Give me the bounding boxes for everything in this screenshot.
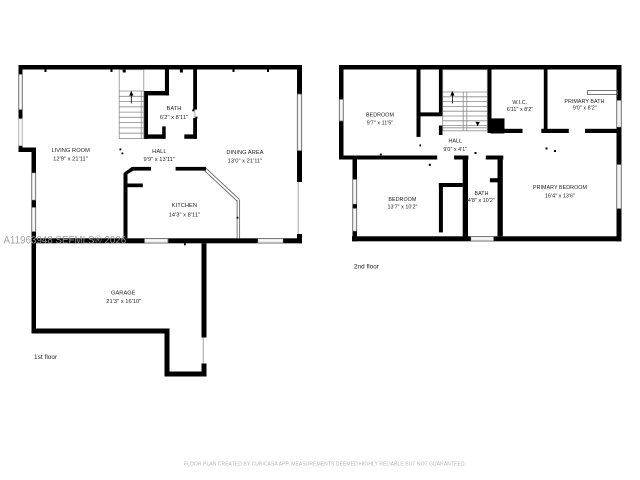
svg-text:21'3" x 16'10": 21'3" x 16'10"	[106, 299, 141, 305]
svg-text:4'8" x 10'2": 4'8" x 10'2"	[468, 198, 495, 204]
svg-text:PRIMARY BEDROOM: PRIMARY BEDROOM	[533, 185, 587, 191]
svg-text:1st floor: 1st floor	[34, 354, 58, 361]
svg-text:12'9" x 21'11": 12'9" x 21'11"	[53, 156, 88, 162]
svg-text:PRIMARY BATH: PRIMARY BATH	[564, 99, 604, 105]
svg-text:13'7" x 10'2": 13'7" x 10'2"	[388, 205, 418, 211]
svg-text:FLOOR PLAN CREATED BY CUBICASA: FLOOR PLAN CREATED BY CUBICASA APP. MEAS…	[184, 461, 466, 467]
svg-text:BATH: BATH	[474, 191, 488, 197]
svg-text:9'9" x 13'11": 9'9" x 13'11"	[143, 157, 174, 163]
svg-text:A11963948 SEFMLS® 2026: A11963948 SEFMLS® 2026	[3, 235, 126, 247]
svg-text:BATH: BATH	[167, 106, 182, 112]
svg-text:9'7" x 11'5": 9'7" x 11'5"	[367, 120, 394, 126]
svg-text:DINING AREA: DINING AREA	[226, 150, 263, 156]
svg-text:KITCHEN: KITCHEN	[172, 203, 197, 209]
svg-text:LIVING ROOM: LIVING ROOM	[51, 148, 90, 154]
svg-text:BEDROOM: BEDROOM	[388, 197, 416, 203]
svg-text:16'4" x 13'6": 16'4" x 13'6"	[545, 194, 575, 200]
svg-text:13'0" x 21'11": 13'0" x 21'11"	[228, 158, 263, 164]
svg-text:2nd floor: 2nd floor	[354, 264, 379, 271]
svg-text:14'3" x 8'11": 14'3" x 8'11"	[169, 212, 200, 218]
svg-text:9'0" x 8'2": 9'0" x 8'2"	[573, 106, 597, 112]
svg-text:HALL: HALL	[449, 138, 463, 144]
svg-text:6'11" x 8'2": 6'11" x 8'2"	[507, 107, 534, 113]
svg-text:9'0" x 4'1": 9'0" x 4'1"	[443, 147, 467, 153]
svg-text:GARAGE: GARAGE	[111, 291, 136, 297]
svg-text:BEDROOM: BEDROOM	[366, 113, 394, 119]
svg-text:6'2" x 8'11": 6'2" x 8'11"	[160, 115, 188, 121]
svg-text:HALL: HALL	[152, 149, 166, 155]
svg-text:W.I.C.: W.I.C.	[512, 100, 527, 106]
